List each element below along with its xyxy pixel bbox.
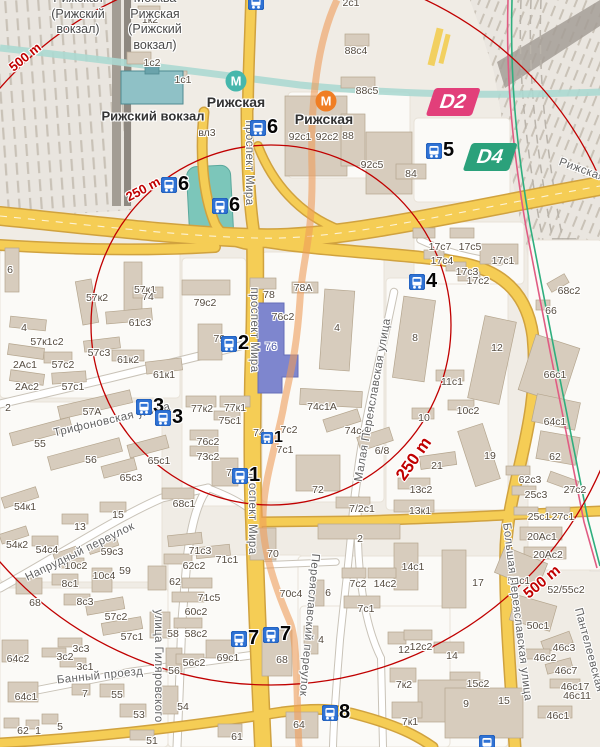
stop-number: 6 — [267, 116, 278, 139]
bus-stop-icon — [479, 735, 495, 747]
bus-stop-icon — [155, 410, 171, 426]
diameter-line-badge: D2 — [426, 88, 481, 116]
bus-stop-icon — [221, 336, 237, 352]
transit-stop-marker[interactable] — [248, 0, 264, 10]
transit-stop-marker[interactable]: 6 — [212, 194, 240, 217]
transit-stop-marker[interactable]: 7 — [263, 623, 291, 646]
bus-stop-icon — [136, 399, 152, 415]
transit-stop-marker[interactable]: 6 — [161, 173, 189, 196]
diameter-line-badge: D4 — [463, 143, 518, 171]
transit-stop-marker[interactable]: 2 — [221, 332, 249, 355]
stop-number: 2 — [238, 332, 249, 355]
stop-number: 3 — [172, 406, 183, 429]
map-viewport[interactable]: 1к21с21с1вл392с192с28888с488с592с5842с16… — [0, 0, 600, 747]
bus-stop-icon — [322, 705, 338, 721]
bus-stop-icon — [248, 0, 264, 10]
metro-icon[interactable]: М — [226, 71, 247, 92]
map-markers-layer: 6665423311778ММD2D4 — [0, 0, 600, 747]
stop-number: 7 — [248, 627, 259, 650]
stop-number: 6 — [178, 173, 189, 196]
stop-number: 1 — [274, 429, 283, 447]
stop-number: 5 — [443, 139, 454, 162]
transit-stop-marker[interactable]: 5 — [426, 139, 454, 162]
bus-stop-icon — [161, 177, 177, 193]
transit-stop-marker[interactable]: 8 — [322, 701, 350, 724]
bus-stop-icon — [426, 143, 442, 159]
bus-stop-icon — [231, 631, 247, 647]
transit-stop-marker[interactable]: 3 — [155, 406, 183, 429]
bus-stop-icon — [212, 198, 228, 214]
transit-stop-marker[interactable]: 7 — [231, 627, 259, 650]
bus-stop-icon — [232, 468, 248, 484]
bus-stop-icon — [261, 432, 273, 444]
stop-number: 7 — [280, 623, 291, 646]
stop-number: 6 — [229, 194, 240, 217]
bus-stop-icon — [263, 627, 279, 643]
transit-stop-marker[interactable]: 6 — [250, 116, 278, 139]
transit-stop-marker[interactable]: 1 — [261, 429, 283, 447]
transit-stop-marker[interactable]: 4 — [409, 270, 437, 293]
bus-stop-icon — [250, 120, 266, 136]
metro-icon[interactable]: М — [316, 91, 337, 112]
transit-stop-marker[interactable] — [479, 735, 495, 747]
stop-number: 1 — [249, 464, 260, 487]
bus-stop-icon — [409, 274, 425, 290]
stop-number: 8 — [339, 701, 350, 724]
transit-stop-marker[interactable]: 1 — [232, 464, 260, 487]
stop-number: 4 — [426, 270, 437, 293]
